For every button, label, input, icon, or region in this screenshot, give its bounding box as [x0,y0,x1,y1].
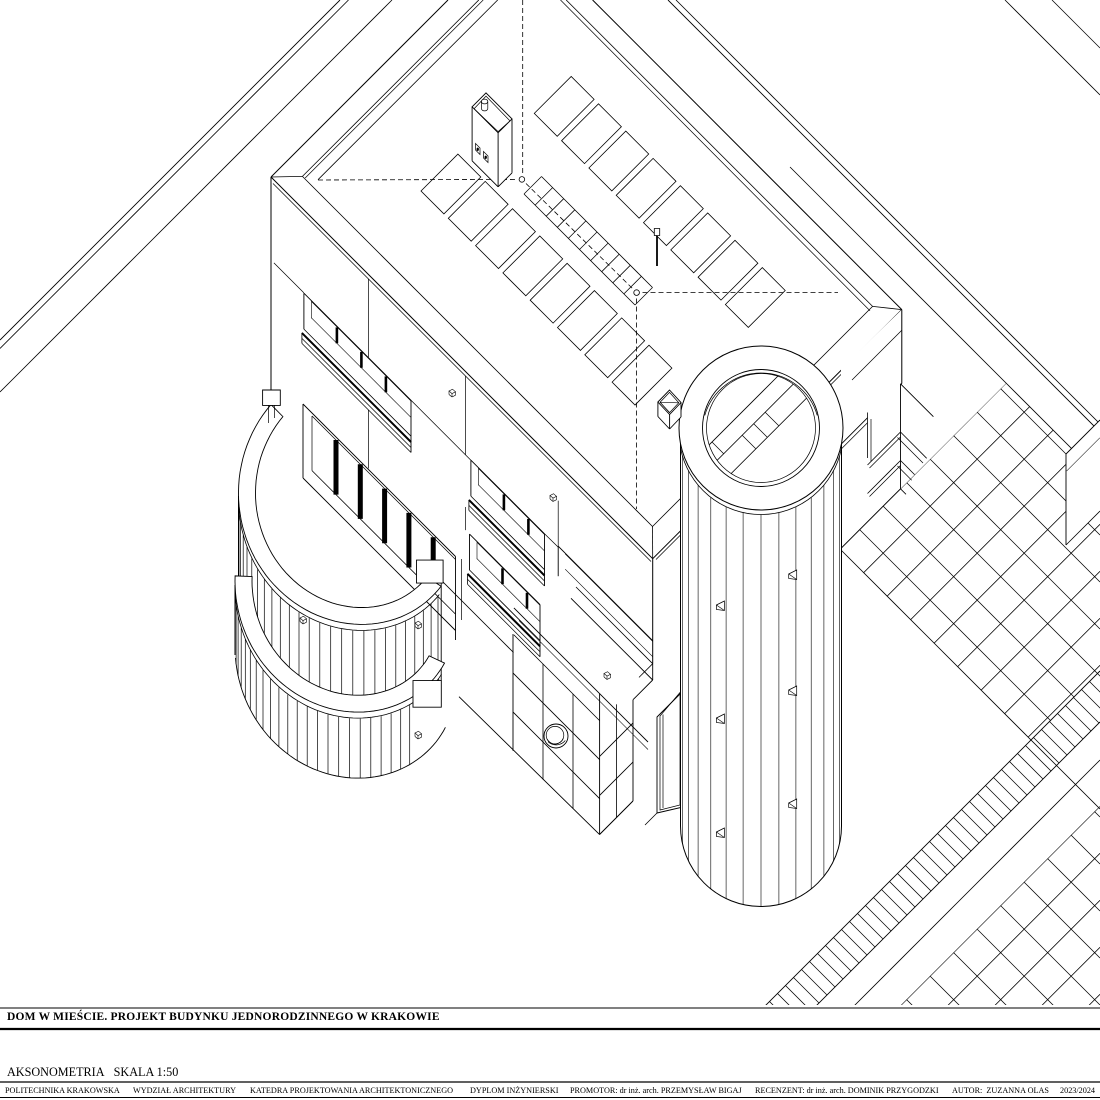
svg-text:2023/2024: 2023/2024 [1060,1086,1095,1095]
svg-text:WYDZIAŁ ARCHITEKTURY: WYDZIAŁ ARCHITEKTURY [133,1086,236,1095]
svg-text:AUTOR: ZUZANNA OLAS: AUTOR: ZUZANNA OLAS [952,1086,1049,1095]
svg-text:RECENZENT: dr inż. arch. DOMIN: RECENZENT: dr inż. arch. DOMINIK PRZYGOD… [755,1086,939,1095]
svg-text:KATEDRA PROJEKTOWANIA ARCHITEK: KATEDRA PROJEKTOWANIA ARCHITEKTONICZNEGO [250,1086,453,1095]
svg-text:AKSONOMETRIA SKALA 1:50: AKSONOMETRIA SKALA 1:50 [7,1065,178,1079]
svg-text:PROMOTOR: dr inż. arch. PRZEMY: PROMOTOR: dr inż. arch. PRZEMYSŁAW BIGAJ [570,1086,742,1095]
svg-text:DOM W MIEŚCIE. PROJEKT BUDYNKU: DOM W MIEŚCIE. PROJEKT BUDYNKU JEDNORODZ… [7,1009,440,1023]
svg-text:DYPLOM INŻYNIERSKI: DYPLOM INŻYNIERSKI [470,1086,559,1095]
svg-text:POLITECHNIKA KRAKOWSKA: POLITECHNIKA KRAKOWSKA [5,1086,120,1095]
